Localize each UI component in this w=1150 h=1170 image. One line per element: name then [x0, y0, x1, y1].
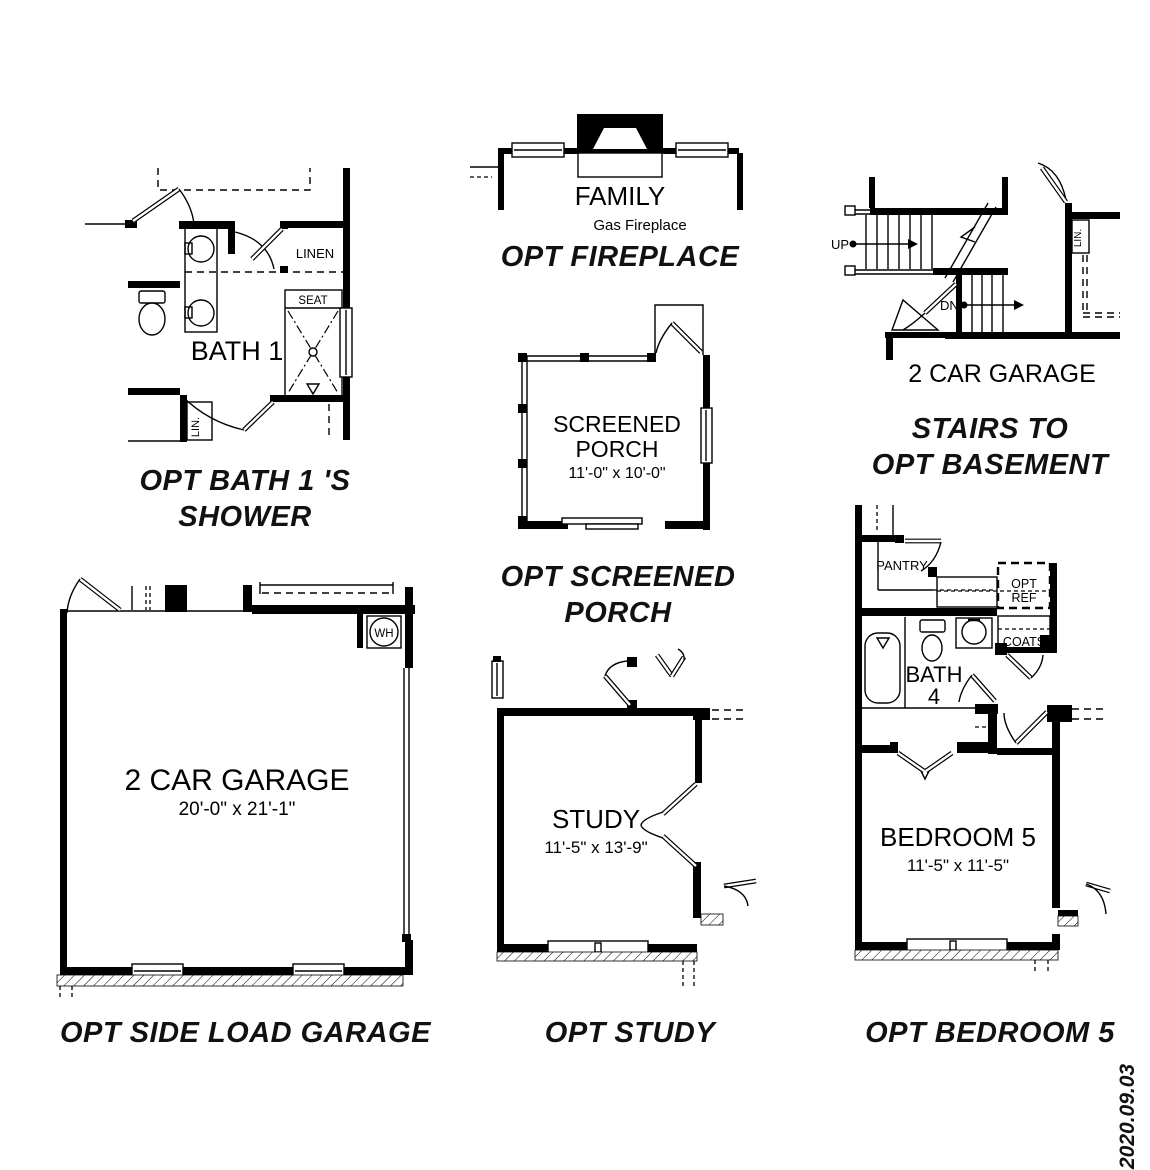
porch-window	[701, 408, 712, 463]
stairs-caption: STAIRS TO OPT BASEMENT	[855, 412, 1125, 484]
linen-closet: LIN.	[1072, 220, 1120, 317]
bath4-door	[959, 675, 995, 702]
vanity-double-sink	[185, 228, 217, 332]
opt-ref-label-2: REF	[1012, 591, 1037, 605]
porch-detail-drawing: SCREENED PORCH 11'-0" x 10'-0"	[505, 295, 735, 545]
up-arrow: UP	[831, 237, 918, 252]
up-label: UP	[831, 237, 849, 252]
opt-ref-box: OPT REF	[937, 563, 1050, 608]
tub-icon	[865, 633, 900, 703]
fireplace-icon	[577, 114, 663, 177]
water-heater-icon: WH	[357, 614, 401, 648]
study-top-door	[605, 657, 637, 710]
stair-treads-lower	[972, 275, 1003, 332]
bedroom-right-door	[1058, 884, 1110, 926]
date-stamp: 2020.09.03	[1116, 1051, 1140, 1169]
study-french-doors	[641, 784, 696, 866]
window-left	[512, 143, 564, 157]
linen-label: LINEN	[296, 246, 334, 261]
toilet-icon	[920, 620, 945, 661]
porch-dims-label: 11'-0" x 10'-0"	[568, 465, 665, 482]
bath1-detail-drawing: SEAT LINEN LIN. BATH 1	[60, 140, 370, 485]
garage-caption: OPT SIDE LOAD GARAGE	[60, 1016, 430, 1052]
side-garage-door	[402, 668, 411, 942]
garage-room-label: 2 CAR GARAGE	[124, 764, 349, 797]
gas-fireplace-faint-label: Gas Fireplace	[593, 217, 686, 234]
seat-label: SEAT	[298, 295, 327, 307]
garage-detail-drawing: WH 2 CAR GARAGE 20'-0" x 21'-1"	[50, 570, 445, 1002]
shower-with-seat: SEAT	[285, 290, 342, 397]
lin-label: LIN.	[190, 417, 202, 437]
bath1-caption: OPT BATH 1 'S SHOWER	[110, 464, 380, 536]
garage-dims-label: 20'-0" x 21'-1"	[179, 799, 296, 820]
study-side-window	[492, 656, 503, 698]
bath1-room-label: BATH 1	[191, 336, 284, 366]
porch-steps	[562, 518, 642, 529]
garage-room-label: 2 CAR GARAGE	[908, 360, 1096, 388]
garage-entry-door	[1038, 163, 1066, 202]
study-caption: OPT STUDY	[520, 1016, 740, 1052]
coats-closet: COATS	[995, 616, 1057, 678]
bath1-entry-door	[133, 189, 194, 224]
study-room-label: STUDY	[552, 804, 640, 834]
hall-door	[1004, 712, 1047, 743]
wh-label: WH	[374, 628, 393, 640]
porch-room-label-1: SCREENED	[553, 411, 681, 437]
bedroom5-detail-drawing: PANTRY OPT REF COATS	[845, 495, 1125, 1010]
stair-treads-upper	[845, 206, 935, 275]
garage-entry-door	[67, 579, 120, 613]
bedroom5-room-label: BEDROOM 5	[880, 822, 1036, 852]
bedroom5-caption: OPT BEDROOM 5	[845, 1016, 1135, 1052]
study-detail-drawing: STUDY 11'-5" x 13'-9"	[480, 645, 770, 990]
window-right	[676, 143, 728, 157]
opt-ref-label-1: OPT	[1011, 577, 1037, 591]
footing-hatch	[57, 975, 403, 998]
hall-door-partial	[657, 649, 684, 676]
porch-caption: OPT SCREENED PORCH	[488, 560, 748, 632]
bedroom5-dims-label: 11'-5" x 11'-5"	[907, 856, 1009, 875]
coats-label: COATS	[1003, 635, 1045, 649]
fireplace-caption: OPT FIREPLACE	[490, 240, 750, 276]
bath4-label-2: 4	[928, 684, 940, 709]
fireplace-detail-drawing: FAMILY Gas Fireplace	[470, 95, 770, 240]
footing-hatch	[497, 952, 697, 986]
bath1-hall-door	[235, 229, 282, 269]
sink-icon	[956, 618, 992, 648]
pantry-nook: PANTRY	[876, 541, 996, 590]
header-above	[260, 582, 393, 594]
toilet-icon	[139, 291, 165, 335]
bedroom-double-doors	[862, 742, 1052, 779]
family-room-label: FAMILY	[575, 181, 666, 211]
pantry-label: PANTRY	[876, 558, 928, 573]
shower-window	[340, 308, 352, 377]
floorplan-options-sheet: SEAT LINEN LIN. BATH 1 OPT BATH 1 'S SHO…	[0, 0, 1150, 1170]
footing-hatch	[855, 950, 1058, 974]
porch-vestibule	[655, 305, 703, 355]
stairs-detail-drawing: UP DN LIN. 2 CAR GARAGE	[830, 160, 1125, 395]
porch-room-label-2: PORCH	[575, 436, 658, 462]
dn-label: DN	[940, 298, 959, 313]
lin-label: LIN.	[1073, 229, 1084, 247]
exterior-stoop-door	[693, 881, 756, 925]
study-dims-label: 11'-5" x 13'-9"	[544, 838, 647, 857]
